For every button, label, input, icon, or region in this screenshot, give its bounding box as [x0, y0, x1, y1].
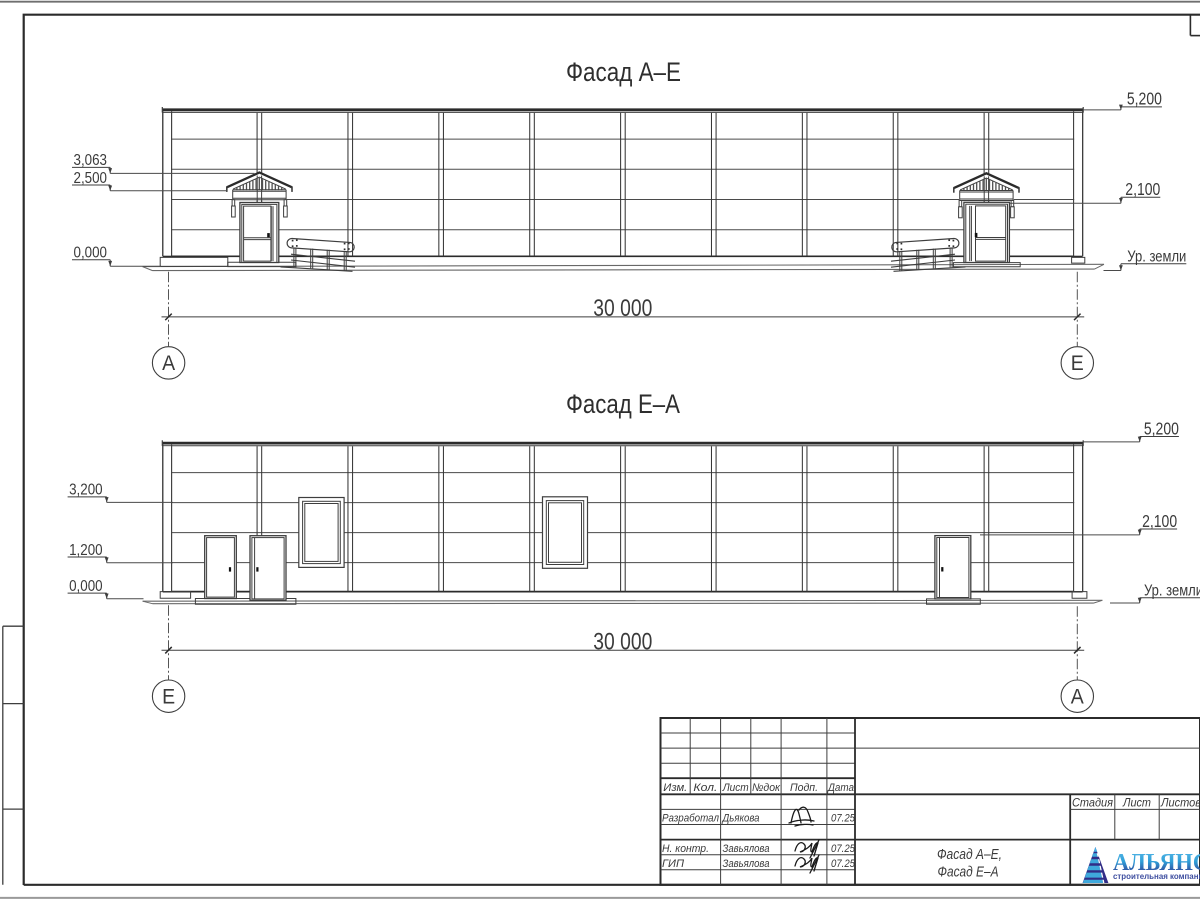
svg-text:1,200: 1,200 [69, 542, 103, 559]
svg-text:Дата: Дата [826, 782, 854, 794]
svg-text:07.25: 07.25 [831, 812, 856, 824]
svg-text:3,063: 3,063 [74, 152, 108, 169]
svg-text:0,000: 0,000 [74, 245, 108, 262]
svg-text:А: А [162, 352, 175, 375]
svg-text:Ур. земли: Ур. земли [1144, 583, 1200, 600]
svg-text:Стадия: Стадия [1072, 795, 1114, 809]
svg-text:07.25: 07.25 [831, 843, 856, 855]
svg-text:Е: Е [162, 686, 175, 709]
svg-text:2,100: 2,100 [1142, 511, 1177, 531]
svg-text:Фасад Е–А: Фасад Е–А [938, 864, 999, 881]
svg-text:5,200: 5,200 [1144, 418, 1179, 438]
svg-text:Лист: Лист [1122, 795, 1151, 809]
svg-text:Е: Е [1071, 352, 1084, 375]
svg-text:2,500: 2,500 [74, 170, 108, 187]
svg-text:Лист: Лист [722, 782, 749, 794]
svg-text:30 000: 30 000 [593, 295, 652, 322]
svg-text:ГИП: ГИП [662, 858, 684, 870]
svg-text:0,000: 0,000 [69, 578, 103, 595]
svg-text:Фасад Е–А: Фасад Е–А [566, 389, 680, 419]
svg-text:2,100: 2,100 [1125, 179, 1160, 199]
svg-text:Дьякова: Дьякова [721, 812, 760, 824]
svg-text:5,200: 5,200 [1127, 89, 1162, 109]
svg-text:Фасад А–Е,: Фасад А–Е, [937, 846, 1002, 863]
svg-text:Подп.: Подп. [790, 782, 818, 794]
svg-text:07.25: 07.25 [831, 858, 856, 870]
svg-text:А: А [1071, 686, 1084, 709]
svg-text:Изм.: Изм. [663, 782, 687, 794]
svg-text:3,200: 3,200 [69, 482, 103, 499]
svg-text:Листов: Листов [1160, 795, 1200, 809]
svg-text:строительная компания: строительная компания [1113, 871, 1200, 881]
svg-text:Ур. земли: Ур. земли [1127, 249, 1186, 266]
svg-text:Завьялова: Завьялова [723, 858, 770, 870]
svg-text:Разработал: Разработал [662, 812, 719, 824]
svg-text:№док: №док [752, 782, 781, 794]
svg-text:Фасад А–Е: Фасад А–Е [566, 57, 681, 87]
svg-text:Н. контр.: Н. контр. [662, 843, 709, 855]
svg-text:Завьялова: Завьялова [723, 843, 770, 855]
svg-text:30 000: 30 000 [593, 628, 652, 655]
svg-text:Кол.: Кол. [693, 782, 717, 794]
